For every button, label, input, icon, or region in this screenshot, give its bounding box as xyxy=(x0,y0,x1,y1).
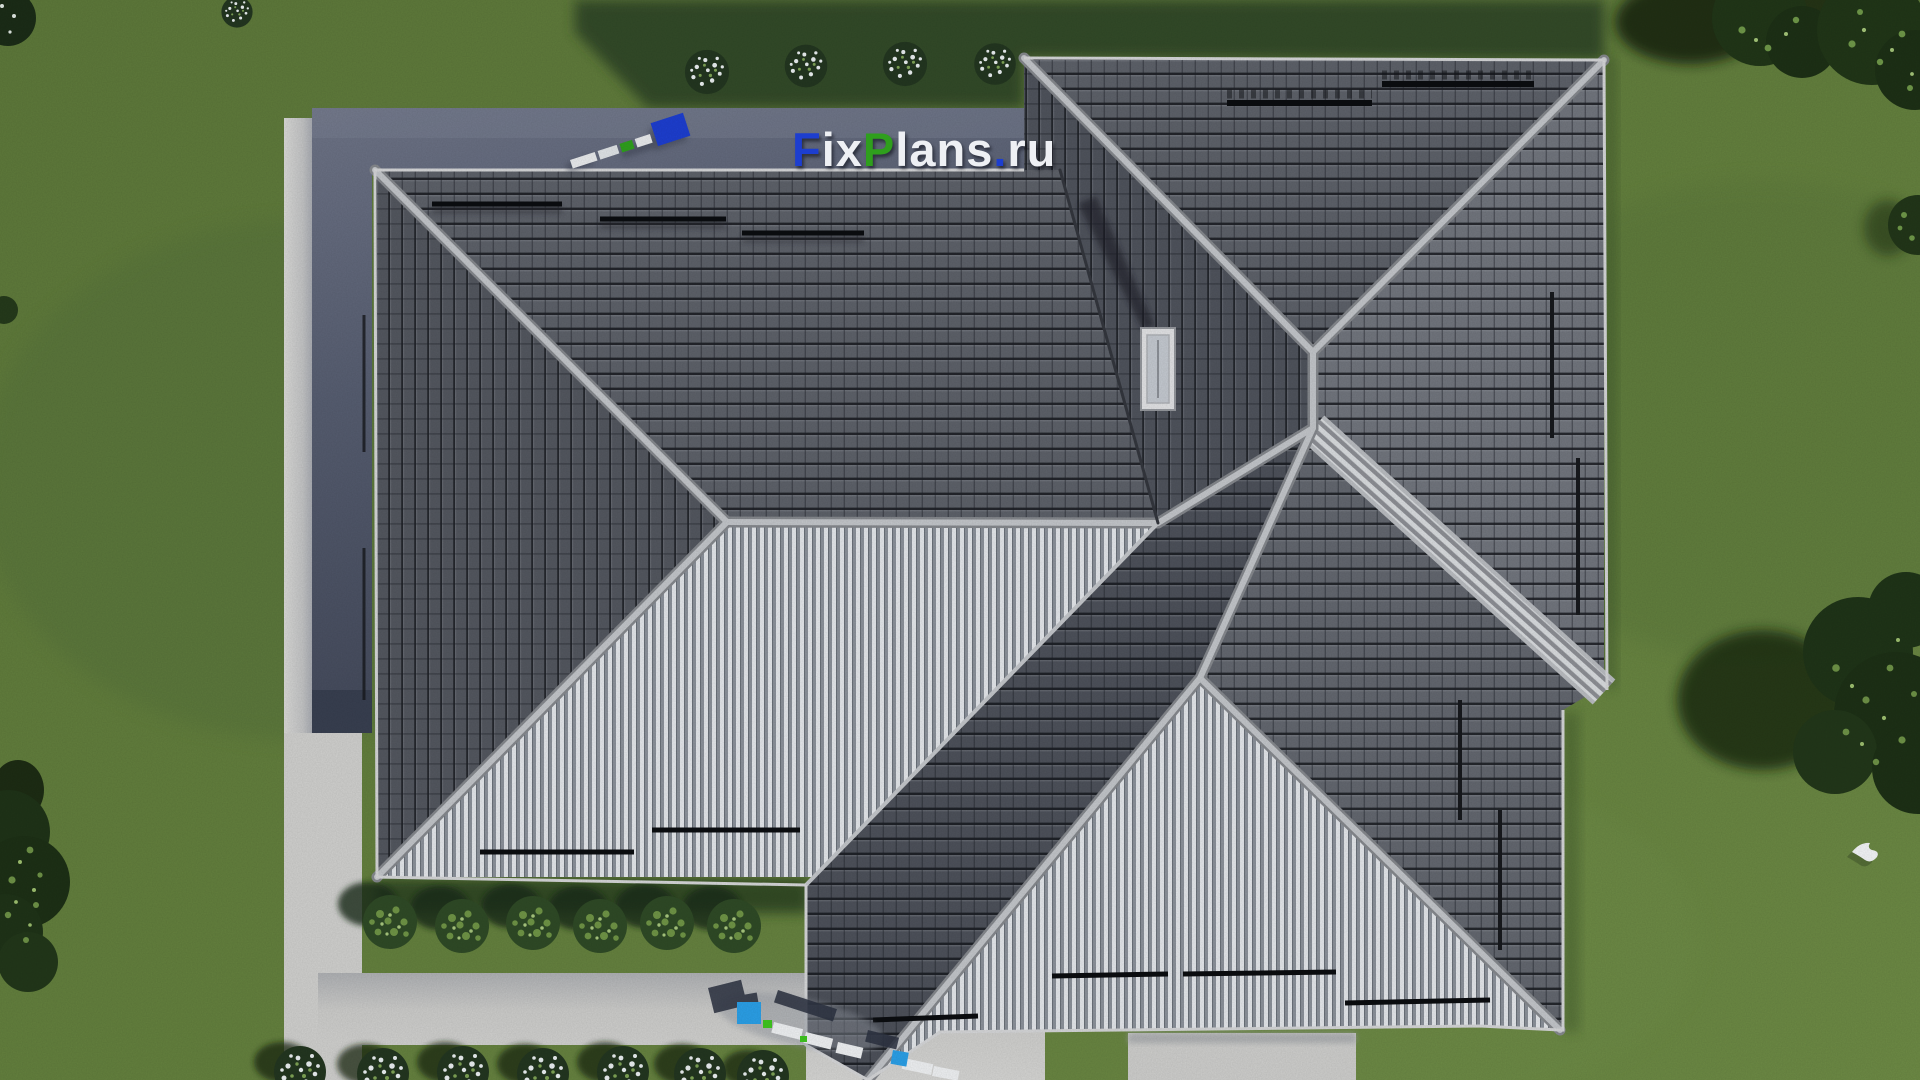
watermark-part-ru: ru xyxy=(1007,123,1056,176)
watermark-part-f: F xyxy=(792,123,822,176)
watermark-part-ix: ix xyxy=(822,123,863,176)
aerial-house-render: FixPlans.ru xyxy=(0,0,1920,1080)
watermark-fixplans: FixPlans.ru xyxy=(792,122,1056,177)
watermark-part-p: P xyxy=(863,123,895,176)
watermark-part-lans: lans xyxy=(895,123,993,176)
watermark-part-dot: . xyxy=(993,123,1007,176)
